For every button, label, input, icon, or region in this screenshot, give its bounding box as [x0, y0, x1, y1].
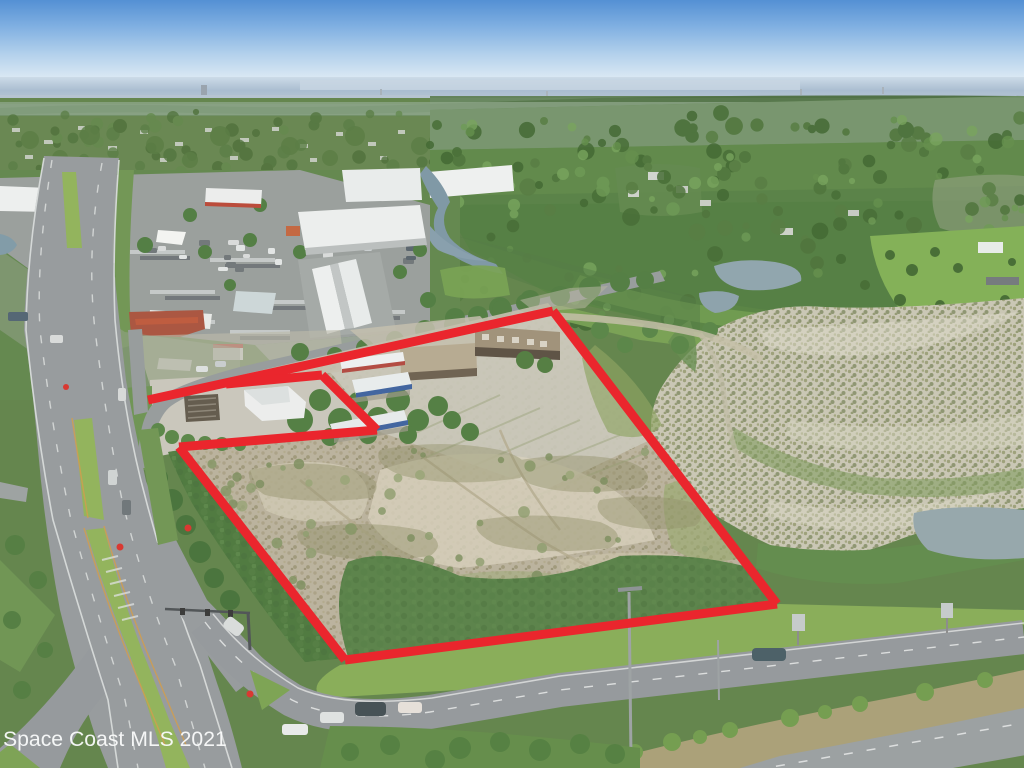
- svg-text:Space Coast MLS 2021: Space Coast MLS 2021: [3, 728, 227, 751]
